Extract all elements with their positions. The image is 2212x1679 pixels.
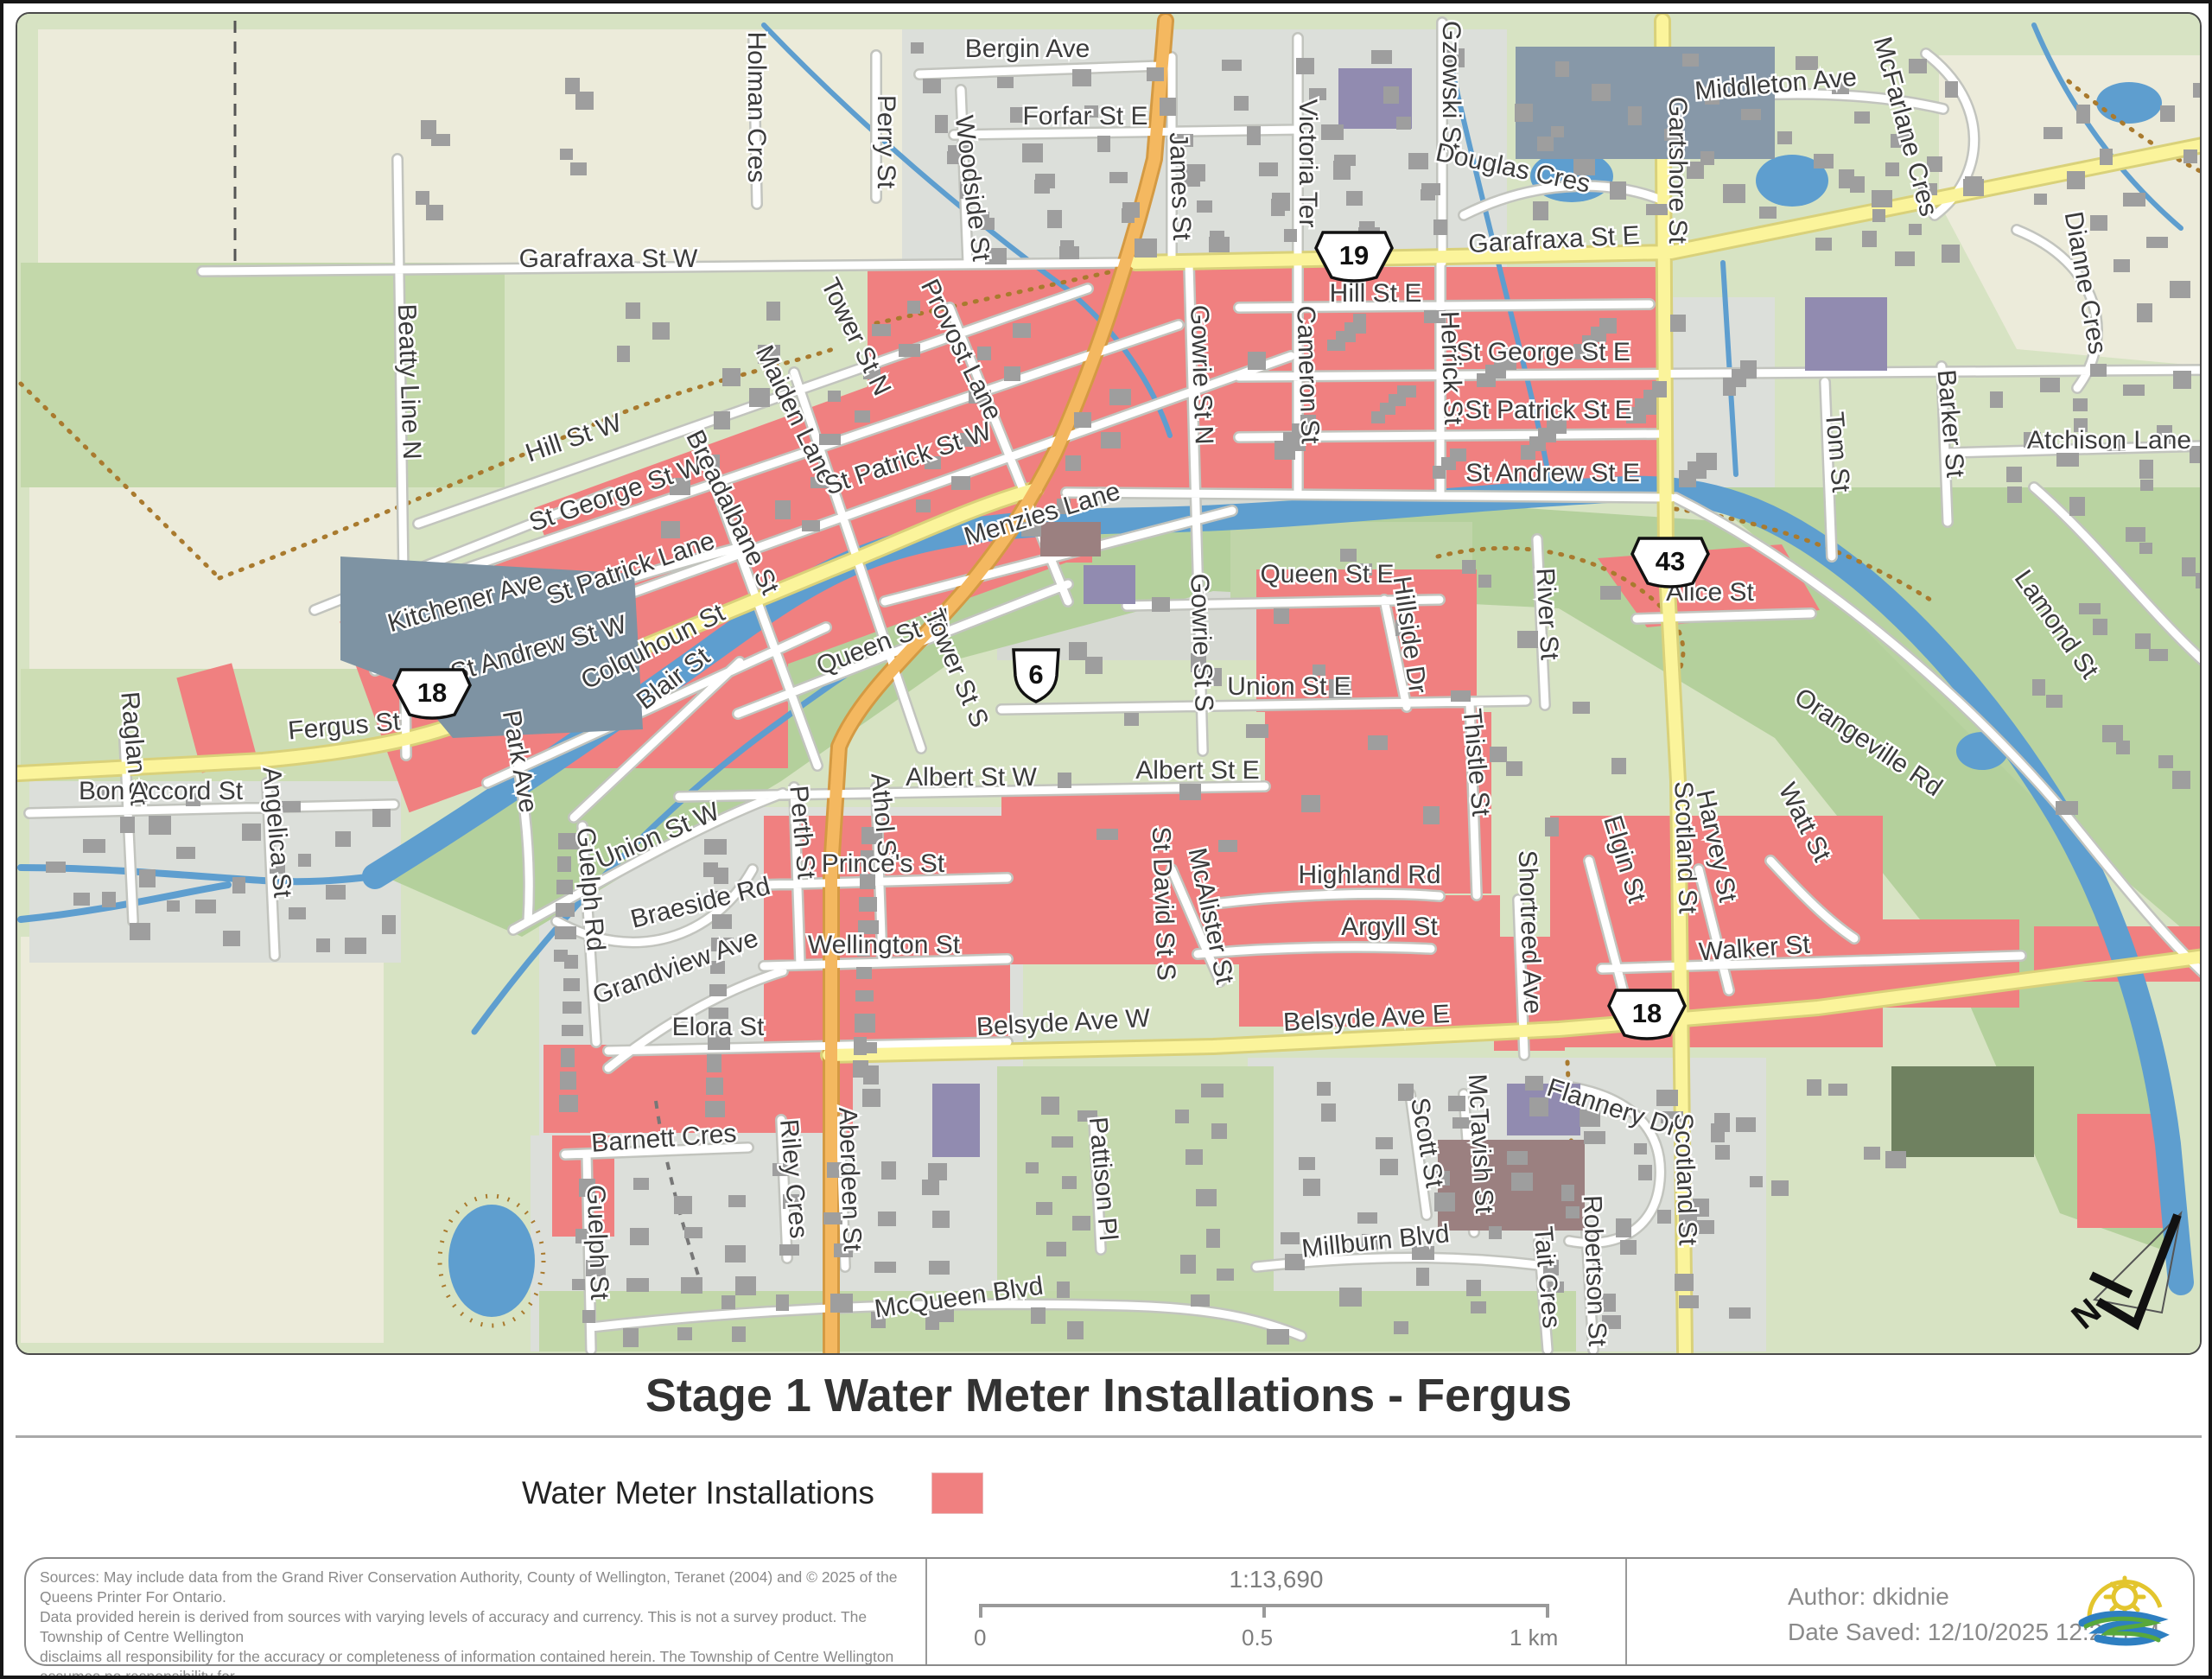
building-footprint [1065, 455, 1081, 471]
building-footprint [1715, 1145, 1730, 1160]
street-label: Hill St E [1330, 279, 1422, 308]
building-footprint [1489, 1226, 1502, 1239]
building-footprint [855, 410, 870, 423]
building-footprint [681, 1277, 702, 1294]
svg-text:19: 19 [1339, 240, 1369, 270]
building-footprint [1965, 176, 1982, 192]
building-footprint [1864, 1147, 1880, 1160]
building-footprint [721, 1295, 735, 1309]
street-label: Prince's St [822, 849, 945, 878]
building-footprint [2173, 371, 2191, 389]
building-footprint [1551, 126, 1564, 137]
building-footprint [1371, 411, 1385, 423]
street-label: Bon Accord St [79, 777, 244, 805]
building-footprint [1723, 378, 1736, 396]
building-footprint [1259, 162, 1278, 176]
building-footprint [1872, 209, 1885, 222]
building-footprint [854, 1037, 867, 1055]
building-footprint [1434, 1192, 1455, 1212]
building-footprint [2069, 497, 2085, 516]
building-footprint [1433, 219, 1447, 235]
building-footprint [223, 931, 240, 946]
building-footprint [1573, 702, 1590, 714]
building-footprint [916, 499, 931, 512]
street-label: Herrick St [1435, 310, 1468, 425]
building-footprint [1638, 1165, 1652, 1180]
building-footprint [2183, 149, 2197, 163]
building-footprint [1600, 586, 1621, 600]
building-footprint [556, 880, 573, 894]
building-footprint [1611, 758, 1626, 774]
building-footprint [1274, 608, 1289, 624]
building-footprint [1109, 172, 1128, 183]
building-footprint [149, 816, 171, 835]
legend-label: Water Meter Installations [522, 1475, 874, 1511]
building-footprint [932, 1211, 950, 1228]
building-footprint [1339, 1288, 1362, 1307]
building-footprint [1466, 1280, 1481, 1296]
street-label: Gzowski St [1437, 21, 1465, 151]
building-footprint [1396, 117, 1411, 130]
building-footprint [2116, 741, 2130, 754]
building-footprint [709, 984, 727, 996]
building-footprint [928, 1163, 947, 1180]
building-footprint [1507, 1151, 1528, 1165]
building-footprint [1284, 229, 1297, 242]
building-footprint [707, 1054, 721, 1072]
building-footprint [1566, 1206, 1580, 1218]
building-footprint [1521, 445, 1535, 460]
building-footprint [862, 1089, 880, 1107]
building-footprint [911, 42, 924, 54]
building-footprint [1346, 191, 1363, 206]
building-footprint [1477, 373, 1496, 387]
street-label: Beatty Line N [392, 303, 426, 460]
building-footprint [575, 92, 594, 110]
street-label: St Patrick St E [1465, 396, 1631, 424]
building-footprint [855, 990, 874, 1002]
building-footprint [195, 900, 216, 913]
building-footprint [776, 1294, 789, 1311]
building-footprint [232, 877, 245, 894]
building-footprint [1416, 1268, 1429, 1286]
building-footprint [1490, 747, 1507, 762]
street-label: Perry St [872, 95, 900, 189]
building-footprint [582, 1310, 595, 1323]
building-footprint [728, 1195, 746, 1207]
building-footprint [1013, 323, 1031, 338]
building-footprint [335, 831, 351, 847]
building-footprint [1909, 224, 1922, 235]
building-footprint [2007, 487, 2022, 503]
building-footprint [677, 1327, 692, 1340]
building-footprint [1895, 251, 1915, 266]
building-footprint [2123, 385, 2145, 396]
building-footprint [1057, 1282, 1070, 1298]
building-footprint [1333, 161, 1351, 180]
building-footprint [856, 967, 872, 979]
building-footprint [703, 862, 718, 877]
sources-line: Sources: May include data from the Grand… [40, 1568, 920, 1607]
building-footprint [176, 847, 195, 859]
building-footprint [1074, 412, 1091, 428]
building-footprint [1109, 389, 1131, 405]
building-footprint [2067, 171, 2085, 189]
building-footprint [1451, 690, 1471, 702]
building-footprint [1135, 238, 1157, 258]
building-footprint [2123, 193, 2145, 207]
building-footprint [1398, 1084, 1414, 1101]
building-footprint [1462, 560, 1476, 574]
building-footprint [2160, 105, 2175, 122]
building-footprint [2076, 105, 2090, 124]
building-footprint [661, 521, 680, 538]
building-footprint [2056, 453, 2079, 467]
building-footprint [1175, 1110, 1189, 1123]
building-footprint [1777, 131, 1792, 144]
building-footprint [120, 817, 135, 833]
building-footprint [1471, 1301, 1486, 1313]
building-footprint [1059, 246, 1079, 259]
building-footprint [289, 907, 306, 919]
building-footprint [572, 1279, 585, 1290]
svg-text:6: 6 [1028, 659, 1043, 690]
building-footprint [557, 856, 571, 872]
building-footprint [1246, 724, 1268, 738]
building-footprint [1271, 199, 1285, 216]
building-footprint [2044, 127, 2063, 139]
building-footprint [722, 368, 741, 386]
building-footprint [1062, 1176, 1077, 1189]
street-label: Holman Cres [742, 31, 771, 182]
building-footprint [1584, 1131, 1605, 1144]
building-footprint [922, 1180, 939, 1195]
building-footprint [1031, 1307, 1046, 1324]
building-footprint [630, 1228, 649, 1245]
building-footprint [1301, 795, 1320, 812]
building-footprint [1234, 96, 1249, 111]
building-footprint [1197, 200, 1212, 213]
svg-text:43: 43 [1656, 546, 1685, 576]
street-label: James St [1164, 132, 1196, 242]
township-logo-icon [2077, 1566, 2171, 1656]
building-footprint [674, 1196, 692, 1214]
building-footprint [997, 77, 1014, 88]
building-footprint [1321, 1103, 1336, 1122]
street-label: Forfar St E [1022, 102, 1147, 130]
building-footprint [706, 1078, 723, 1095]
building-footprint [1201, 1084, 1224, 1097]
building-footprint [1096, 829, 1118, 840]
building-footprint [372, 809, 391, 827]
building-footprint [735, 1276, 756, 1295]
building-footprint [1555, 61, 1569, 77]
street-label: Wellington St [808, 931, 961, 959]
building-footprint [2100, 149, 2113, 165]
building-footprint [1682, 54, 1699, 67]
building-footprint [570, 162, 587, 175]
building-footprint [1097, 136, 1110, 152]
building-footprint [1610, 181, 1626, 200]
street-label: Bergin Ave [965, 35, 1090, 63]
building-footprint [1421, 189, 1435, 200]
building-footprint [2079, 603, 2101, 614]
building-footprint [1152, 597, 1170, 612]
building-footprint [766, 302, 780, 321]
street-label: Albert St W [906, 763, 1037, 792]
street-label: Garafraxa St W [519, 245, 698, 273]
building-footprint [1515, 104, 1533, 122]
building-footprint [1317, 1082, 1331, 1096]
building-footprint [2006, 467, 2022, 482]
building-footprint [1909, 59, 1927, 73]
building-footprint [881, 1161, 896, 1180]
building-footprint [2073, 398, 2088, 411]
title-panel: Stage 1 Water Meter Installations - Ferg… [16, 1357, 2202, 1438]
building-footprint [626, 1278, 649, 1292]
street-label: Aberdeen St [833, 1107, 867, 1253]
building-footprint [1303, 1179, 1320, 1196]
building-footprint [2034, 194, 2047, 205]
building-footprint [1122, 208, 1135, 223]
building-footprint [1942, 245, 1960, 263]
building-footprint [1394, 1321, 1408, 1334]
street-label: Queen St E [1260, 560, 1394, 588]
building-footprint [712, 914, 732, 929]
building-footprint [2182, 557, 2196, 576]
building-footprint [1022, 143, 1043, 162]
sources-line: disclaims all responsibility for the acc… [40, 1647, 920, 1679]
building-footprint [1026, 1162, 1039, 1173]
scale-bar [979, 1604, 1549, 1607]
building-footprint [561, 1048, 575, 1067]
building-footprint [779, 1244, 799, 1256]
building-footprint [1885, 162, 1899, 176]
building-footprint [2102, 725, 2123, 742]
building-footprint [1299, 1157, 1315, 1170]
building-footprint [1814, 154, 1834, 169]
building-footprint [1380, 1159, 1398, 1175]
street-label: St David St S [1147, 826, 1180, 981]
legend-panel: Water Meter Installations [16, 1441, 2202, 1545]
building-footprint [2113, 259, 2130, 272]
building-footprint [1771, 1180, 1789, 1196]
building-footprint [704, 839, 727, 855]
building-footprint [2158, 755, 2173, 768]
building-footprint [2193, 83, 2200, 98]
building-footprint [426, 205, 443, 220]
page-title: Stage 1 Water Meter Installations - Ferg… [16, 1369, 2202, 1422]
building-footprint [1408, 153, 1428, 169]
street-label: Robertson St [1578, 1195, 1611, 1348]
building-footprint [1034, 180, 1050, 194]
street-label: Union St E [1227, 672, 1351, 701]
building-footprint [802, 520, 820, 531]
building-footprint [1679, 470, 1696, 487]
building-footprint [1478, 575, 1491, 588]
street-label: Scotland St [1669, 1112, 1701, 1246]
building-footprint [1545, 817, 1559, 836]
building-footprint [617, 346, 630, 362]
street-label: Albert St E [1135, 756, 1259, 785]
building-footprint [907, 301, 920, 314]
building-footprint [872, 324, 891, 336]
building-footprint [1274, 441, 1295, 460]
street-label: Victoria Ter [1294, 99, 1322, 228]
building-footprint [1723, 184, 1745, 203]
street-label: Gowrie St N [1185, 304, 1218, 445]
building-footprint [1052, 1136, 1073, 1148]
building-footprint [1206, 1229, 1220, 1248]
building-footprint [102, 892, 116, 907]
building-footprint [853, 1060, 868, 1078]
building-footprint [316, 938, 330, 952]
building-footprint [83, 839, 105, 853]
building-footprint [562, 1025, 583, 1036]
building-footprint [1620, 1240, 1637, 1255]
building-footprint [1218, 840, 1237, 852]
building-footprint [560, 1072, 576, 1090]
sources-line: Data provided herein is derived from sou… [40, 1607, 920, 1647]
building-footprint [725, 1245, 746, 1262]
building-footprint [1248, 352, 1266, 370]
building-footprint [1741, 109, 1761, 120]
building-footprint [1004, 366, 1020, 381]
building-footprint [714, 411, 730, 429]
building-footprint [652, 322, 670, 340]
building-footprint [1990, 391, 2003, 408]
building-footprint [859, 897, 877, 912]
street-label: Gowrie St S [1185, 573, 1218, 712]
street-label: Atchison Lane [2027, 426, 2191, 455]
building-footprint [1376, 1137, 1393, 1149]
building-footprint [130, 923, 150, 940]
building-footprint [1511, 1173, 1533, 1191]
building-footprint [828, 391, 841, 402]
building-footprint [1448, 1096, 1465, 1111]
building-footprint [2126, 527, 2145, 542]
building-footprint [1525, 1076, 1543, 1091]
building-footprint [1041, 1097, 1059, 1115]
building-footprint [416, 191, 429, 205]
building-footprint [1533, 201, 1548, 220]
building-footprint [775, 500, 791, 519]
meta-block: Author: dkidnie Date Saved: 12/10/2025 1… [1627, 1559, 2193, 1664]
building-footprint [1296, 58, 1314, 74]
building-footprint [732, 1326, 746, 1342]
building-footprint [1423, 806, 1440, 824]
building-footprint [623, 1328, 639, 1347]
building-footprint [1628, 106, 1642, 125]
building-footprint [2196, 573, 2200, 588]
building-footprint [1656, 1090, 1678, 1106]
building-footprint [382, 915, 396, 934]
building-footprint [951, 476, 970, 490]
scale-ratio: 1:13,690 [927, 1566, 1625, 1593]
building-footprint [1945, 81, 1958, 98]
building-footprint [633, 1178, 649, 1190]
building-footprint [830, 1294, 853, 1313]
building-footprint [1368, 735, 1388, 750]
building-footprint [1839, 169, 1854, 188]
footer-panel: Sources: May include data from the Grand… [24, 1557, 2195, 1666]
building-footprint [1537, 137, 1554, 151]
building-footprint [1371, 50, 1392, 64]
sources-block: Sources: May include data from the Grand… [26, 1559, 927, 1664]
building-footprint [626, 302, 640, 319]
street-label: River St [1530, 567, 1564, 661]
building-footprint [1383, 86, 1399, 104]
building-footprint [1634, 1143, 1647, 1154]
building-footprint [2139, 543, 2152, 554]
building-footprint [2090, 215, 2107, 231]
building-footprint [563, 978, 580, 991]
building-footprint [1714, 1113, 1730, 1132]
building-footprint [1321, 124, 1344, 140]
street-label: Argyll St [1341, 913, 1438, 941]
building-footprint [2149, 649, 2168, 661]
building-footprint [1281, 1232, 1300, 1244]
building-footprint [1069, 642, 1087, 660]
building-footprint [1862, 231, 1877, 247]
building-footprint [1670, 315, 1686, 332]
building-footprint [749, 388, 770, 407]
street-label: Cameron St [1291, 305, 1325, 445]
building-footprint [2172, 771, 2190, 789]
building-footprint [1222, 60, 1242, 71]
building-footprint [929, 1261, 950, 1275]
building-footprint [560, 149, 573, 160]
building-footprint [563, 1002, 582, 1014]
building-footprint [1085, 657, 1103, 674]
building-footprint [684, 1227, 702, 1238]
street-label: Gartshore St [1663, 97, 1692, 245]
building-footprint [1675, 1274, 1694, 1291]
building-footprint [1072, 69, 1091, 86]
building-footprint [1179, 784, 1201, 800]
building-footprint [705, 1101, 725, 1117]
building-footprint [1180, 1255, 1196, 1274]
building-footprint [1101, 432, 1121, 448]
scale-block: 1:13,690 0 0.5 1 km [927, 1559, 1627, 1664]
building-footprint [1147, 67, 1164, 81]
building-footprint [2032, 679, 2045, 696]
building-footprint [1036, 1202, 1052, 1215]
building-footprint [1209, 237, 1230, 252]
street-label: Shortreed Ave [1513, 849, 1548, 1014]
map-panel: Bergin AveForfar St EHolman CresPerry St… [16, 12, 2202, 1355]
building-footprint [431, 134, 450, 146]
building-footprint [1759, 207, 1777, 219]
building-footprint [1657, 1210, 1671, 1224]
legend-swatch [931, 1472, 983, 1514]
building-footprint [1211, 1123, 1227, 1139]
building-footprint [2040, 378, 2060, 392]
building-footprint [554, 950, 568, 962]
building-footprint [298, 854, 311, 867]
building-footprint [1217, 1269, 1234, 1281]
building-footprint [556, 903, 575, 917]
building-footprint [1072, 1216, 1090, 1231]
building-footprint [1047, 210, 1062, 228]
building-footprint [1267, 1329, 1289, 1345]
legend-row: Water Meter Installations [522, 1472, 983, 1514]
building-footprint [1807, 1079, 1821, 1096]
building-footprint [2093, 619, 2107, 635]
building-footprint [1357, 1212, 1377, 1224]
building-footprint [1854, 111, 1870, 124]
building-footprint [2146, 237, 2168, 248]
